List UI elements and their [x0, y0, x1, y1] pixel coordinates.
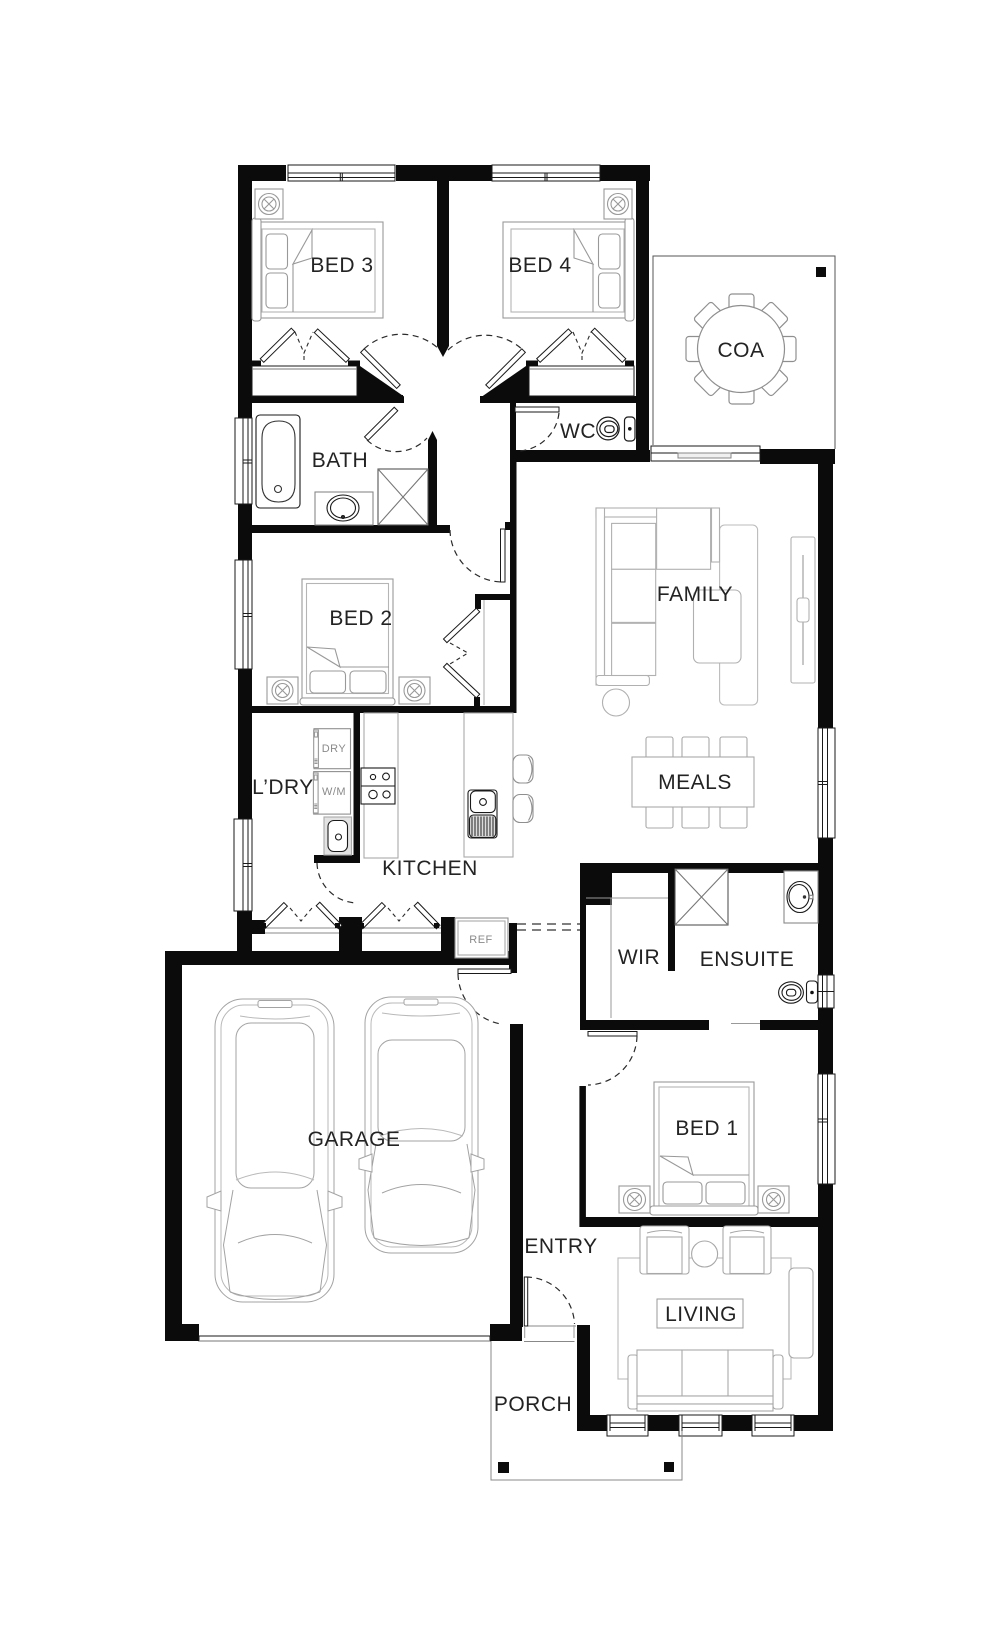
- svg-text:WIR: WIR: [618, 946, 660, 969]
- svg-text:WC: WC: [560, 420, 596, 443]
- svg-text:COA: COA: [717, 339, 764, 362]
- svg-text:ENSUITE: ENSUITE: [700, 948, 795, 971]
- svg-text:GARAGE: GARAGE: [308, 1128, 401, 1151]
- svg-text:MEALS: MEALS: [658, 771, 732, 794]
- svg-text:PORCH: PORCH: [494, 1393, 572, 1416]
- svg-text:ENTRY: ENTRY: [524, 1235, 597, 1258]
- svg-text:REF: REF: [469, 934, 493, 946]
- svg-text:DRY: DRY: [322, 743, 347, 755]
- svg-text:KITCHEN: KITCHEN: [382, 857, 478, 880]
- svg-text:L’DRY: L’DRY: [252, 776, 314, 799]
- svg-text:BED 2: BED 2: [329, 607, 392, 630]
- svg-text:BED 4: BED 4: [508, 254, 571, 277]
- svg-text:LIVING: LIVING: [665, 1303, 737, 1326]
- svg-text:BED 3: BED 3: [310, 254, 373, 277]
- svg-text:FAMILY: FAMILY: [657, 583, 733, 606]
- svg-text:BED 1: BED 1: [675, 1117, 738, 1140]
- svg-text:W/M: W/M: [322, 786, 346, 798]
- svg-text:BATH: BATH: [312, 449, 368, 472]
